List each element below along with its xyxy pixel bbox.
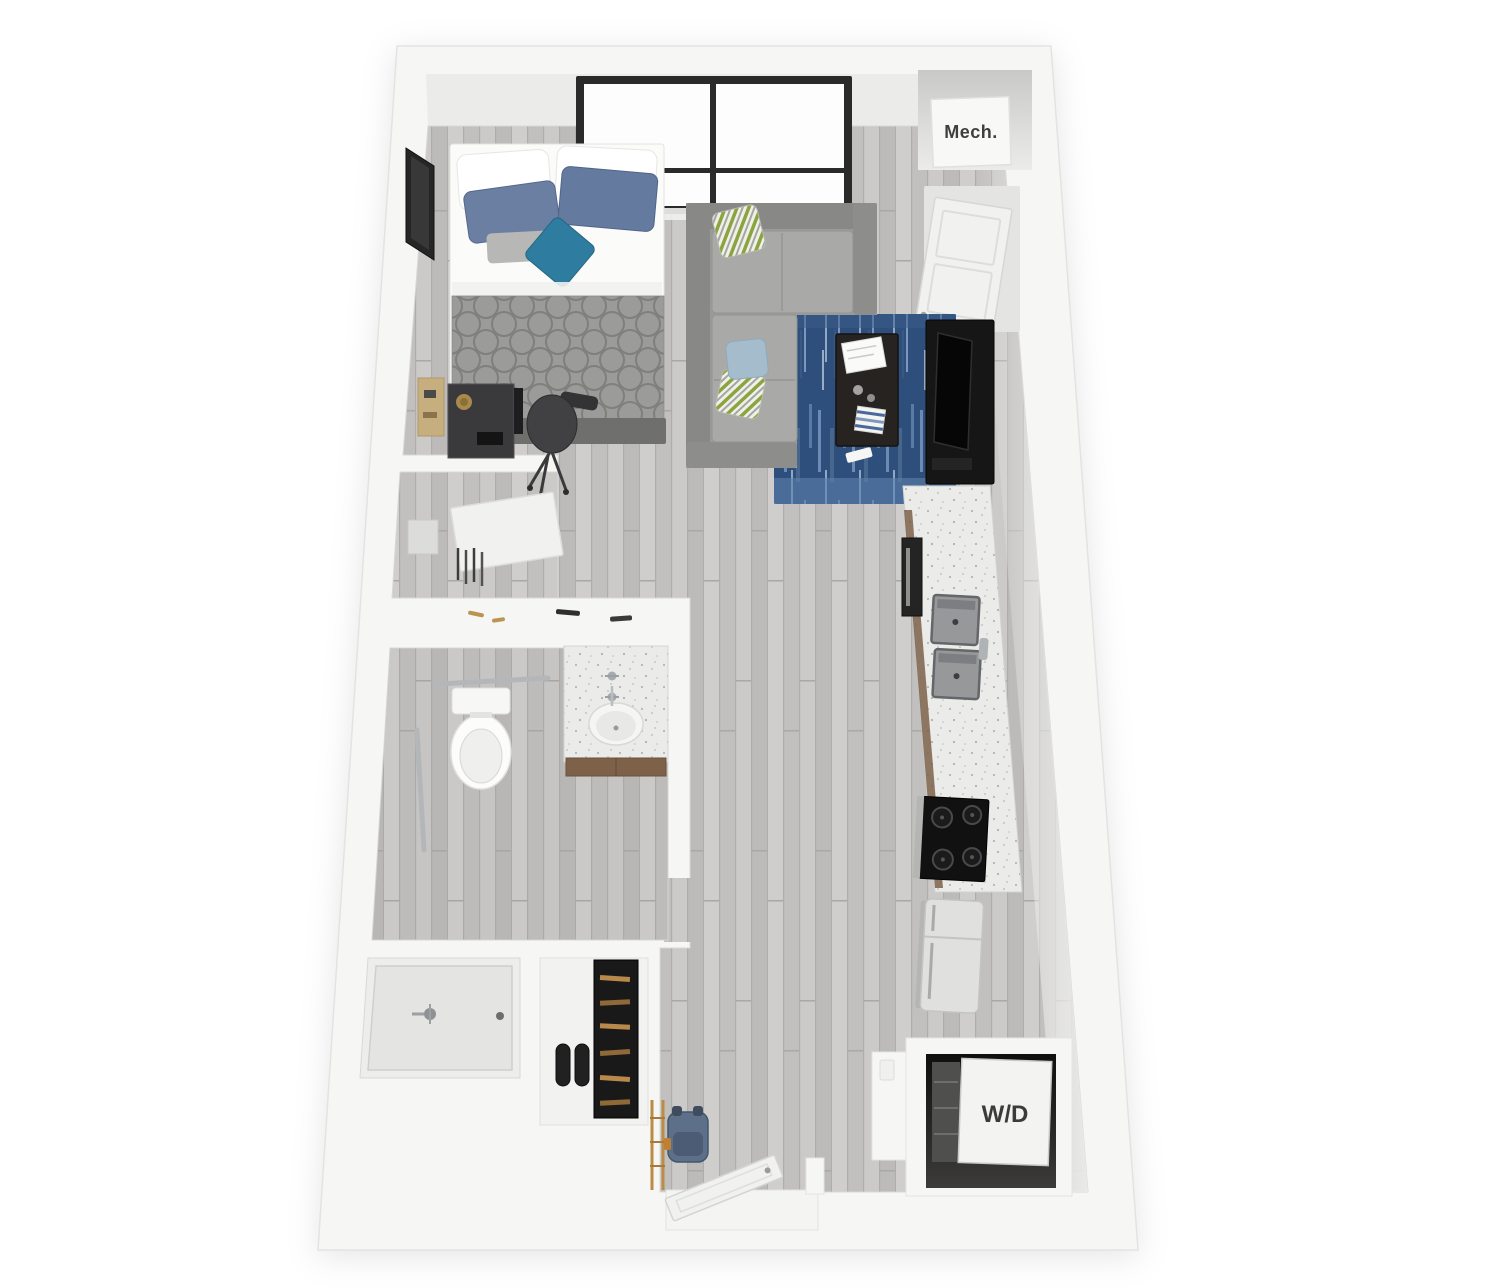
vanity [564,646,668,776]
book [842,337,887,373]
light-blue-pillow [725,338,769,380]
backpack [664,1106,708,1162]
shoe-rack [594,960,638,1118]
mech-closet: Mech. [918,70,1032,170]
media-device [932,458,972,470]
sink-faucet [978,638,989,661]
nightstand [418,378,444,436]
coffee-table [836,334,898,463]
tv-console [926,320,994,484]
refrigerator [915,898,984,1013]
table-decor [867,394,875,402]
desk [448,384,523,458]
floor-plan-page: Mech. [0,0,1500,1288]
monitor [514,388,523,434]
sink-drain [614,726,619,731]
shoe [575,1044,589,1086]
wd-side-panel [932,1062,960,1162]
keyboard [477,432,503,445]
window-mullion-vertical [710,84,716,206]
wall-object [880,1060,894,1080]
toilet [451,688,511,789]
shoe [556,1044,570,1086]
floor-plan: Mech. [0,0,1500,1288]
toilet-tank [452,688,510,714]
wd-closet: W/D [906,1038,1072,1196]
denim-pillow [558,166,659,232]
wd-label: W/D [982,1101,1029,1128]
stove [913,796,989,882]
microwave [902,538,922,616]
table-decor [853,385,863,395]
notebook [854,406,885,434]
mech-label: Mech. [944,122,998,142]
shower-drain [496,1012,504,1020]
shower [368,966,512,1070]
unit-door [915,186,1020,334]
shower-pan [368,966,512,1070]
door-jamb [806,1158,824,1194]
wall-cabinet [408,520,438,554]
wall-art [406,148,434,260]
tv-screen [934,333,972,450]
